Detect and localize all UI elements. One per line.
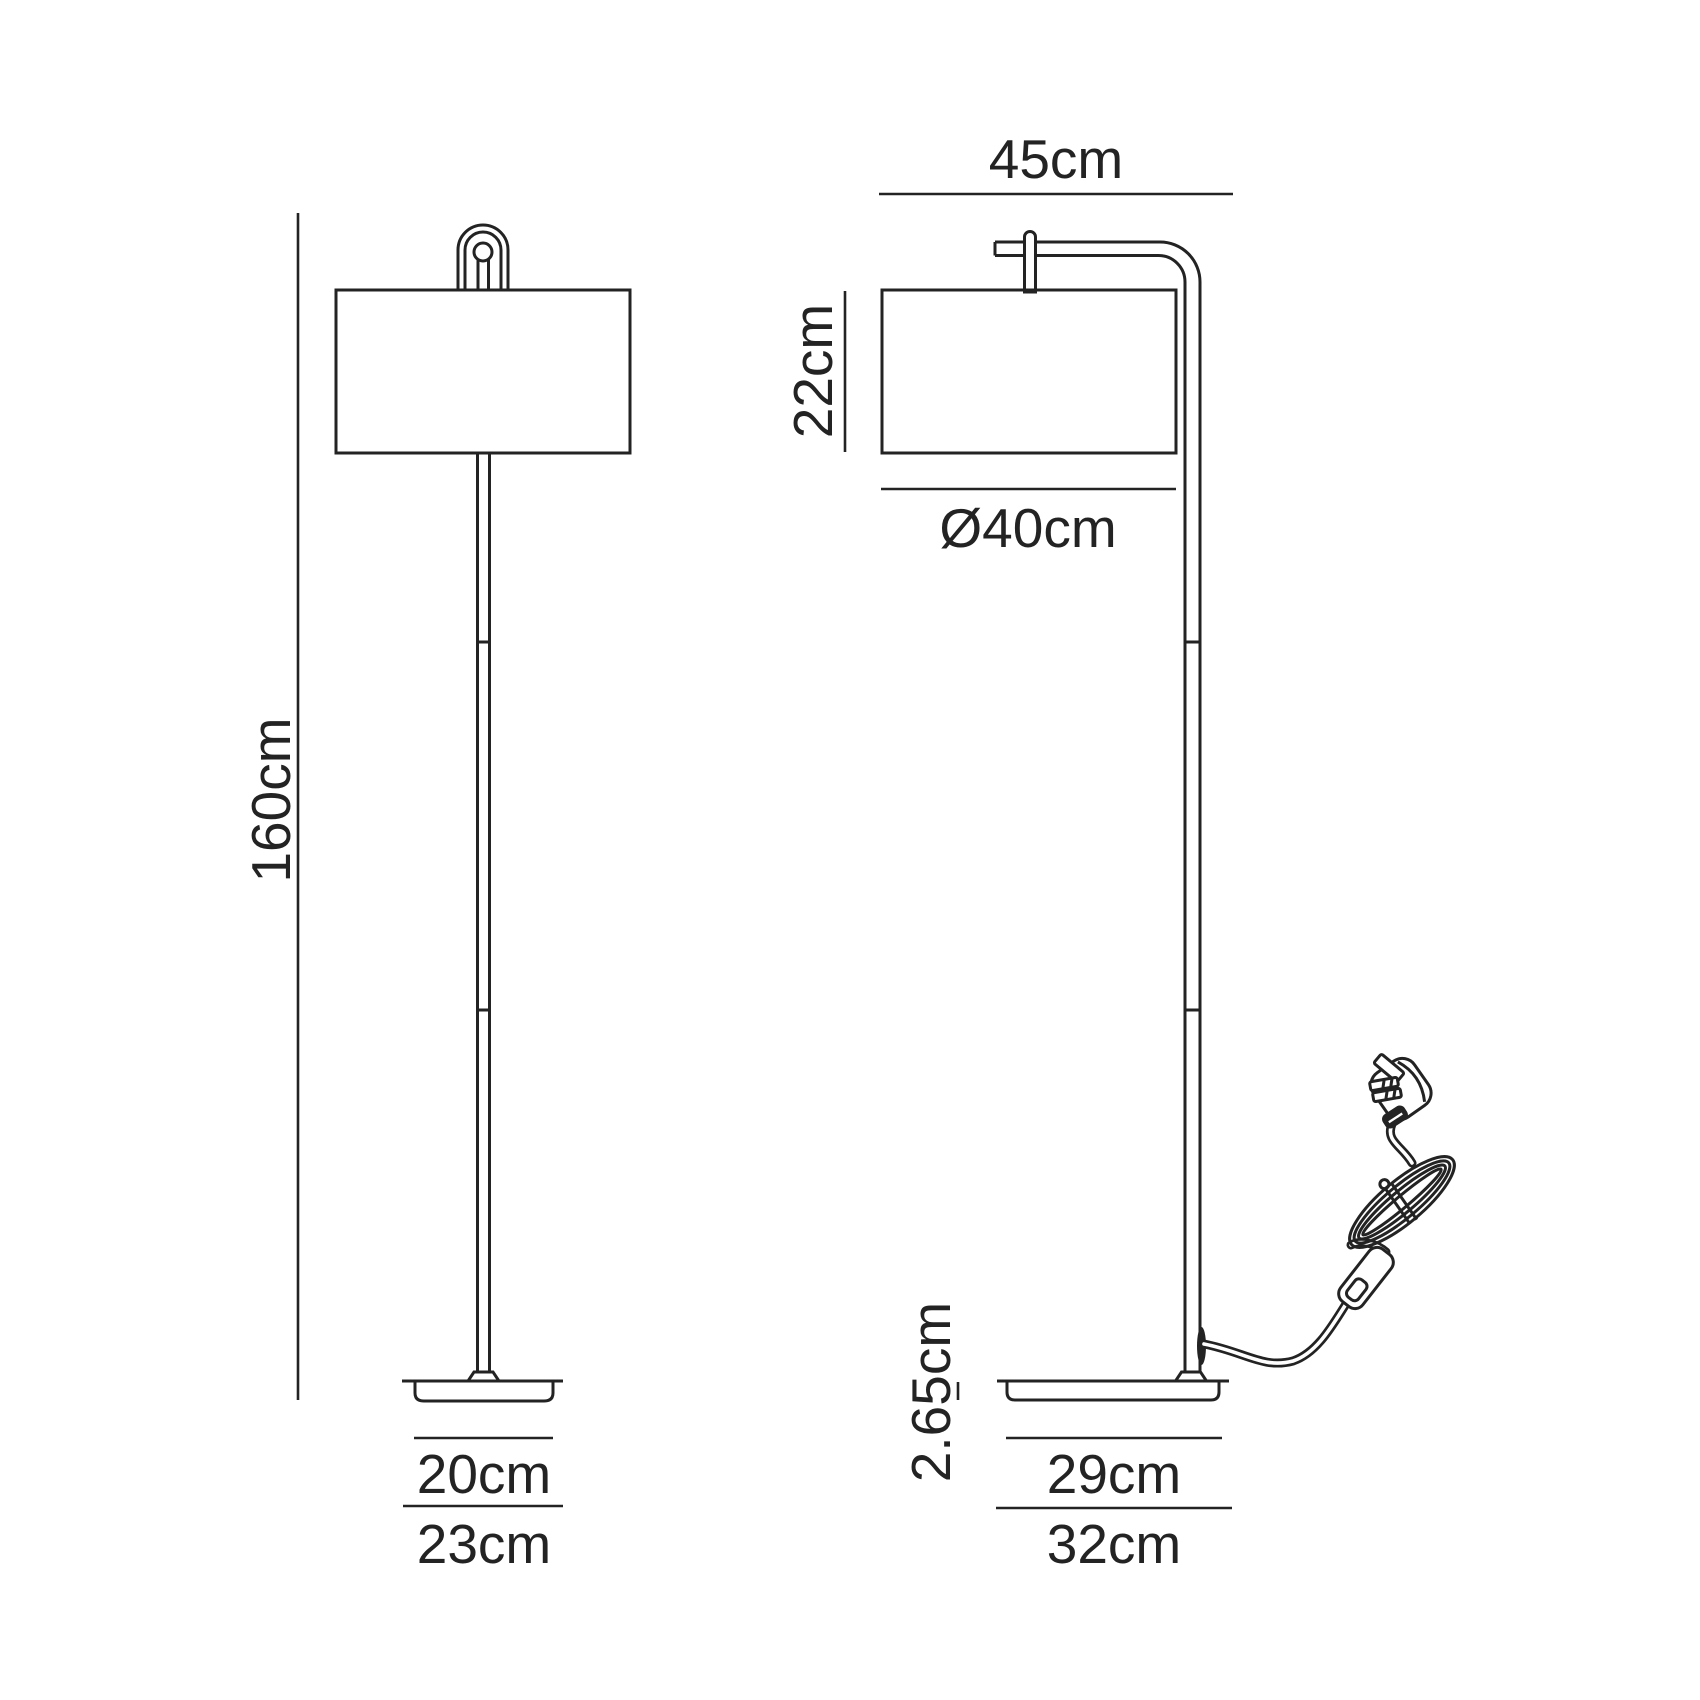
shade-diameter-label: Ø40cm — [939, 497, 1116, 559]
cord-plug-to-coil — [1390, 1124, 1412, 1163]
side-base — [997, 1381, 1229, 1400]
side-base-outer-label: 32cm — [1047, 1513, 1182, 1575]
finial-ball — [474, 243, 492, 261]
front-base-body — [415, 1381, 553, 1401]
diagram-svg: 160cm 20cm 23cm — [0, 0, 1700, 1700]
arm-inner-line — [995, 256, 1185, 1373]
side-shade — [882, 290, 1176, 453]
shade-hanger-rod — [1025, 232, 1036, 292]
front-loop-finial — [458, 225, 508, 290]
front-base-inner-label: 20cm — [417, 1443, 552, 1505]
uk-plug — [1365, 1053, 1437, 1131]
side-base-inner-label: 29cm — [1047, 1443, 1182, 1505]
side-view: 45cm 22cm Ø40cm 2.65cm 29cm — [782, 128, 1233, 1575]
lamp-dimension-diagram: 160cm 20cm 23cm — [0, 0, 1700, 1700]
front-base-outer-label: 23cm — [417, 1513, 552, 1575]
switch-body — [1335, 1243, 1398, 1312]
front-height-label: 160cm — [240, 717, 302, 882]
front-base — [402, 1381, 563, 1401]
power-cord-assembly — [1197, 1053, 1467, 1365]
coil-tie-knot — [1378, 1178, 1391, 1191]
base-thickness-label: 2.65cm — [900, 1302, 962, 1482]
front-shade — [336, 290, 630, 453]
side-base-body — [1007, 1381, 1219, 1400]
side-depth-label: 45cm — [989, 128, 1124, 190]
cord-pole-to-switch — [1204, 1304, 1346, 1363]
front-view: 160cm 20cm 23cm — [240, 213, 630, 1575]
arm-outer-line — [995, 242, 1200, 1372]
shade-height-label: 22cm — [782, 304, 844, 439]
inline-switch — [1335, 1243, 1398, 1312]
front-pole — [468, 453, 499, 1381]
